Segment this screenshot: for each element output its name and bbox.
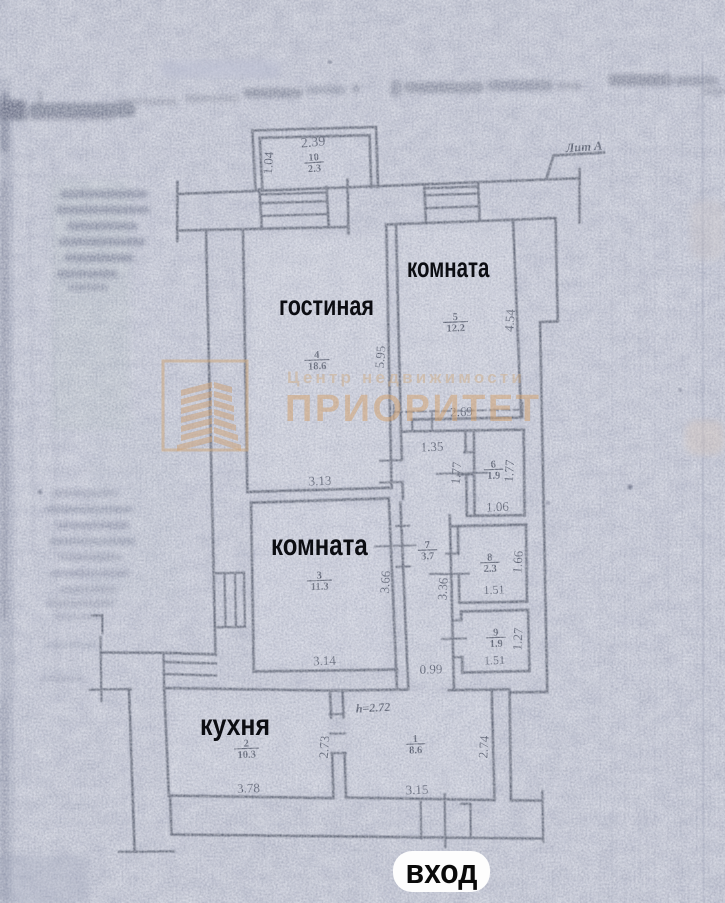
svg-text:ПРИОРИТЕТ: ПРИОРИТЕТ xyxy=(285,388,541,430)
svg-text:комната: комната xyxy=(271,527,368,561)
svg-text:гостиная: гостиная xyxy=(279,290,374,321)
svg-text:вход: вход xyxy=(406,852,478,890)
svg-text:кухня: кухня xyxy=(200,708,270,742)
svg-text:комната: комната xyxy=(407,253,490,284)
svg-text:Центр недвижимости: Центр недвижимости xyxy=(287,368,525,387)
